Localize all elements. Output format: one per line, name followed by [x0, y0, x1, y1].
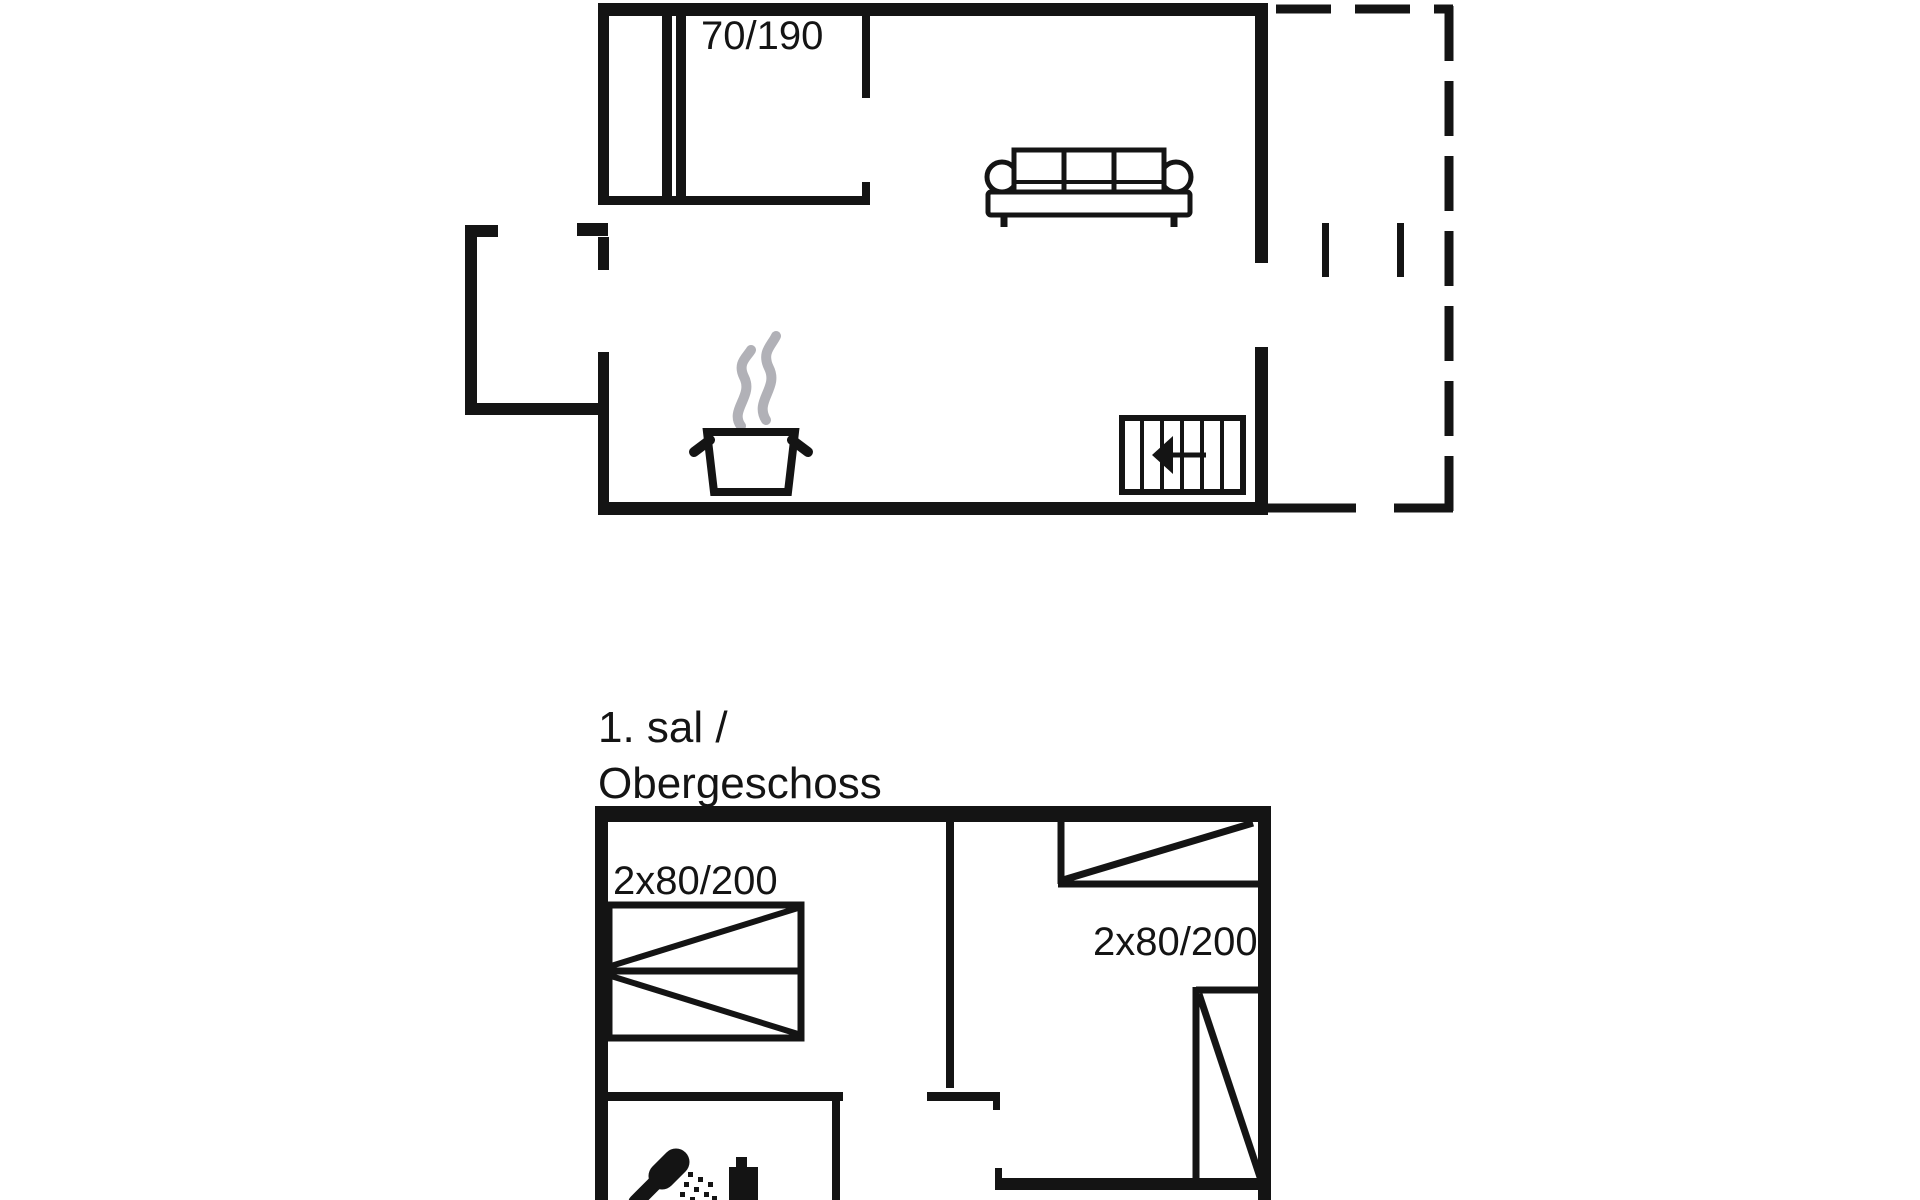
floor-title-line2: Obergeschoss: [598, 759, 882, 808]
wall-segment: [862, 12, 870, 98]
entrance-porch-walls: [465, 223, 608, 415]
bed-diagonal: [611, 976, 798, 1034]
door-jamb: [995, 1168, 1002, 1178]
wall-segment: [662, 10, 672, 200]
water-heater-cap: [736, 1157, 747, 1168]
bed-diagonal: [1063, 823, 1253, 880]
wall-segment: [465, 225, 498, 237]
wall-segment: [927, 1092, 1000, 1101]
cooking-pot-icon: [694, 336, 808, 492]
wall-segment: [465, 225, 477, 415]
wall-segment: [598, 237, 609, 270]
wall-segment: [598, 352, 609, 515]
wall-segment: [608, 1092, 843, 1101]
wall-segment: [832, 1101, 840, 1200]
upper-floor-plan: 1. sal / Obergeschoss 2x80/200: [595, 703, 1271, 1200]
bed-size-label: 2x80/200: [613, 859, 778, 903]
floorplan-page: 70/190: [0, 0, 1920, 1200]
stairs-icon: [1122, 418, 1243, 492]
bed-diagonal: [1199, 994, 1261, 1180]
bed-size-label: 70/190: [701, 14, 823, 58]
shower-spray-dots: [680, 1172, 717, 1200]
wall-segment: [676, 10, 686, 200]
shower-icon: [636, 1162, 717, 1200]
door-jamb: [993, 1101, 1000, 1110]
shower-head: [662, 1162, 676, 1176]
single-bed-icon: [1058, 820, 1268, 884]
sofa-base: [988, 192, 1190, 215]
ground-floor-plan: 70/190: [465, 3, 1453, 515]
wall-segment: [598, 3, 1268, 16]
pot-body: [707, 432, 795, 492]
wall-segment: [598, 3, 609, 205]
wall-segment: [862, 182, 870, 205]
single-bed-icon: [1196, 987, 1268, 1184]
terrace-post-mark: [1322, 223, 1329, 277]
water-heater-body: [729, 1167, 758, 1200]
terrace-dashed-outline: [1268, 6, 1453, 513]
floor-title-line1: 1. sal /: [598, 703, 728, 752]
wall-segment: [465, 403, 608, 415]
wall-segment: [598, 502, 1268, 515]
wall-segment: [598, 196, 870, 205]
water-heater-icon: [729, 1157, 758, 1200]
wall-segment: [1255, 347, 1268, 515]
terrace-post-mark: [1397, 223, 1404, 277]
steam-wisp: [763, 336, 776, 420]
wall-segment: [946, 822, 954, 1088]
wall-segment: [577, 223, 608, 236]
double-bed-icon: [609, 905, 801, 1038]
steam-wisp: [738, 350, 751, 426]
wall-segment: [1255, 3, 1268, 263]
floorplan-drawing: 70/190: [0, 0, 1920, 1200]
wall-segment: [595, 806, 1271, 822]
wall-segment: [1258, 806, 1271, 1200]
wall-segment: [995, 1178, 1271, 1190]
sofa-back: [1014, 150, 1164, 192]
bed-diagonal: [611, 908, 798, 966]
steam-icon: [738, 336, 776, 426]
bed-size-label: 2x80/200: [1093, 920, 1258, 964]
window-double-line: [662, 10, 686, 200]
sofa-icon: [987, 150, 1191, 227]
